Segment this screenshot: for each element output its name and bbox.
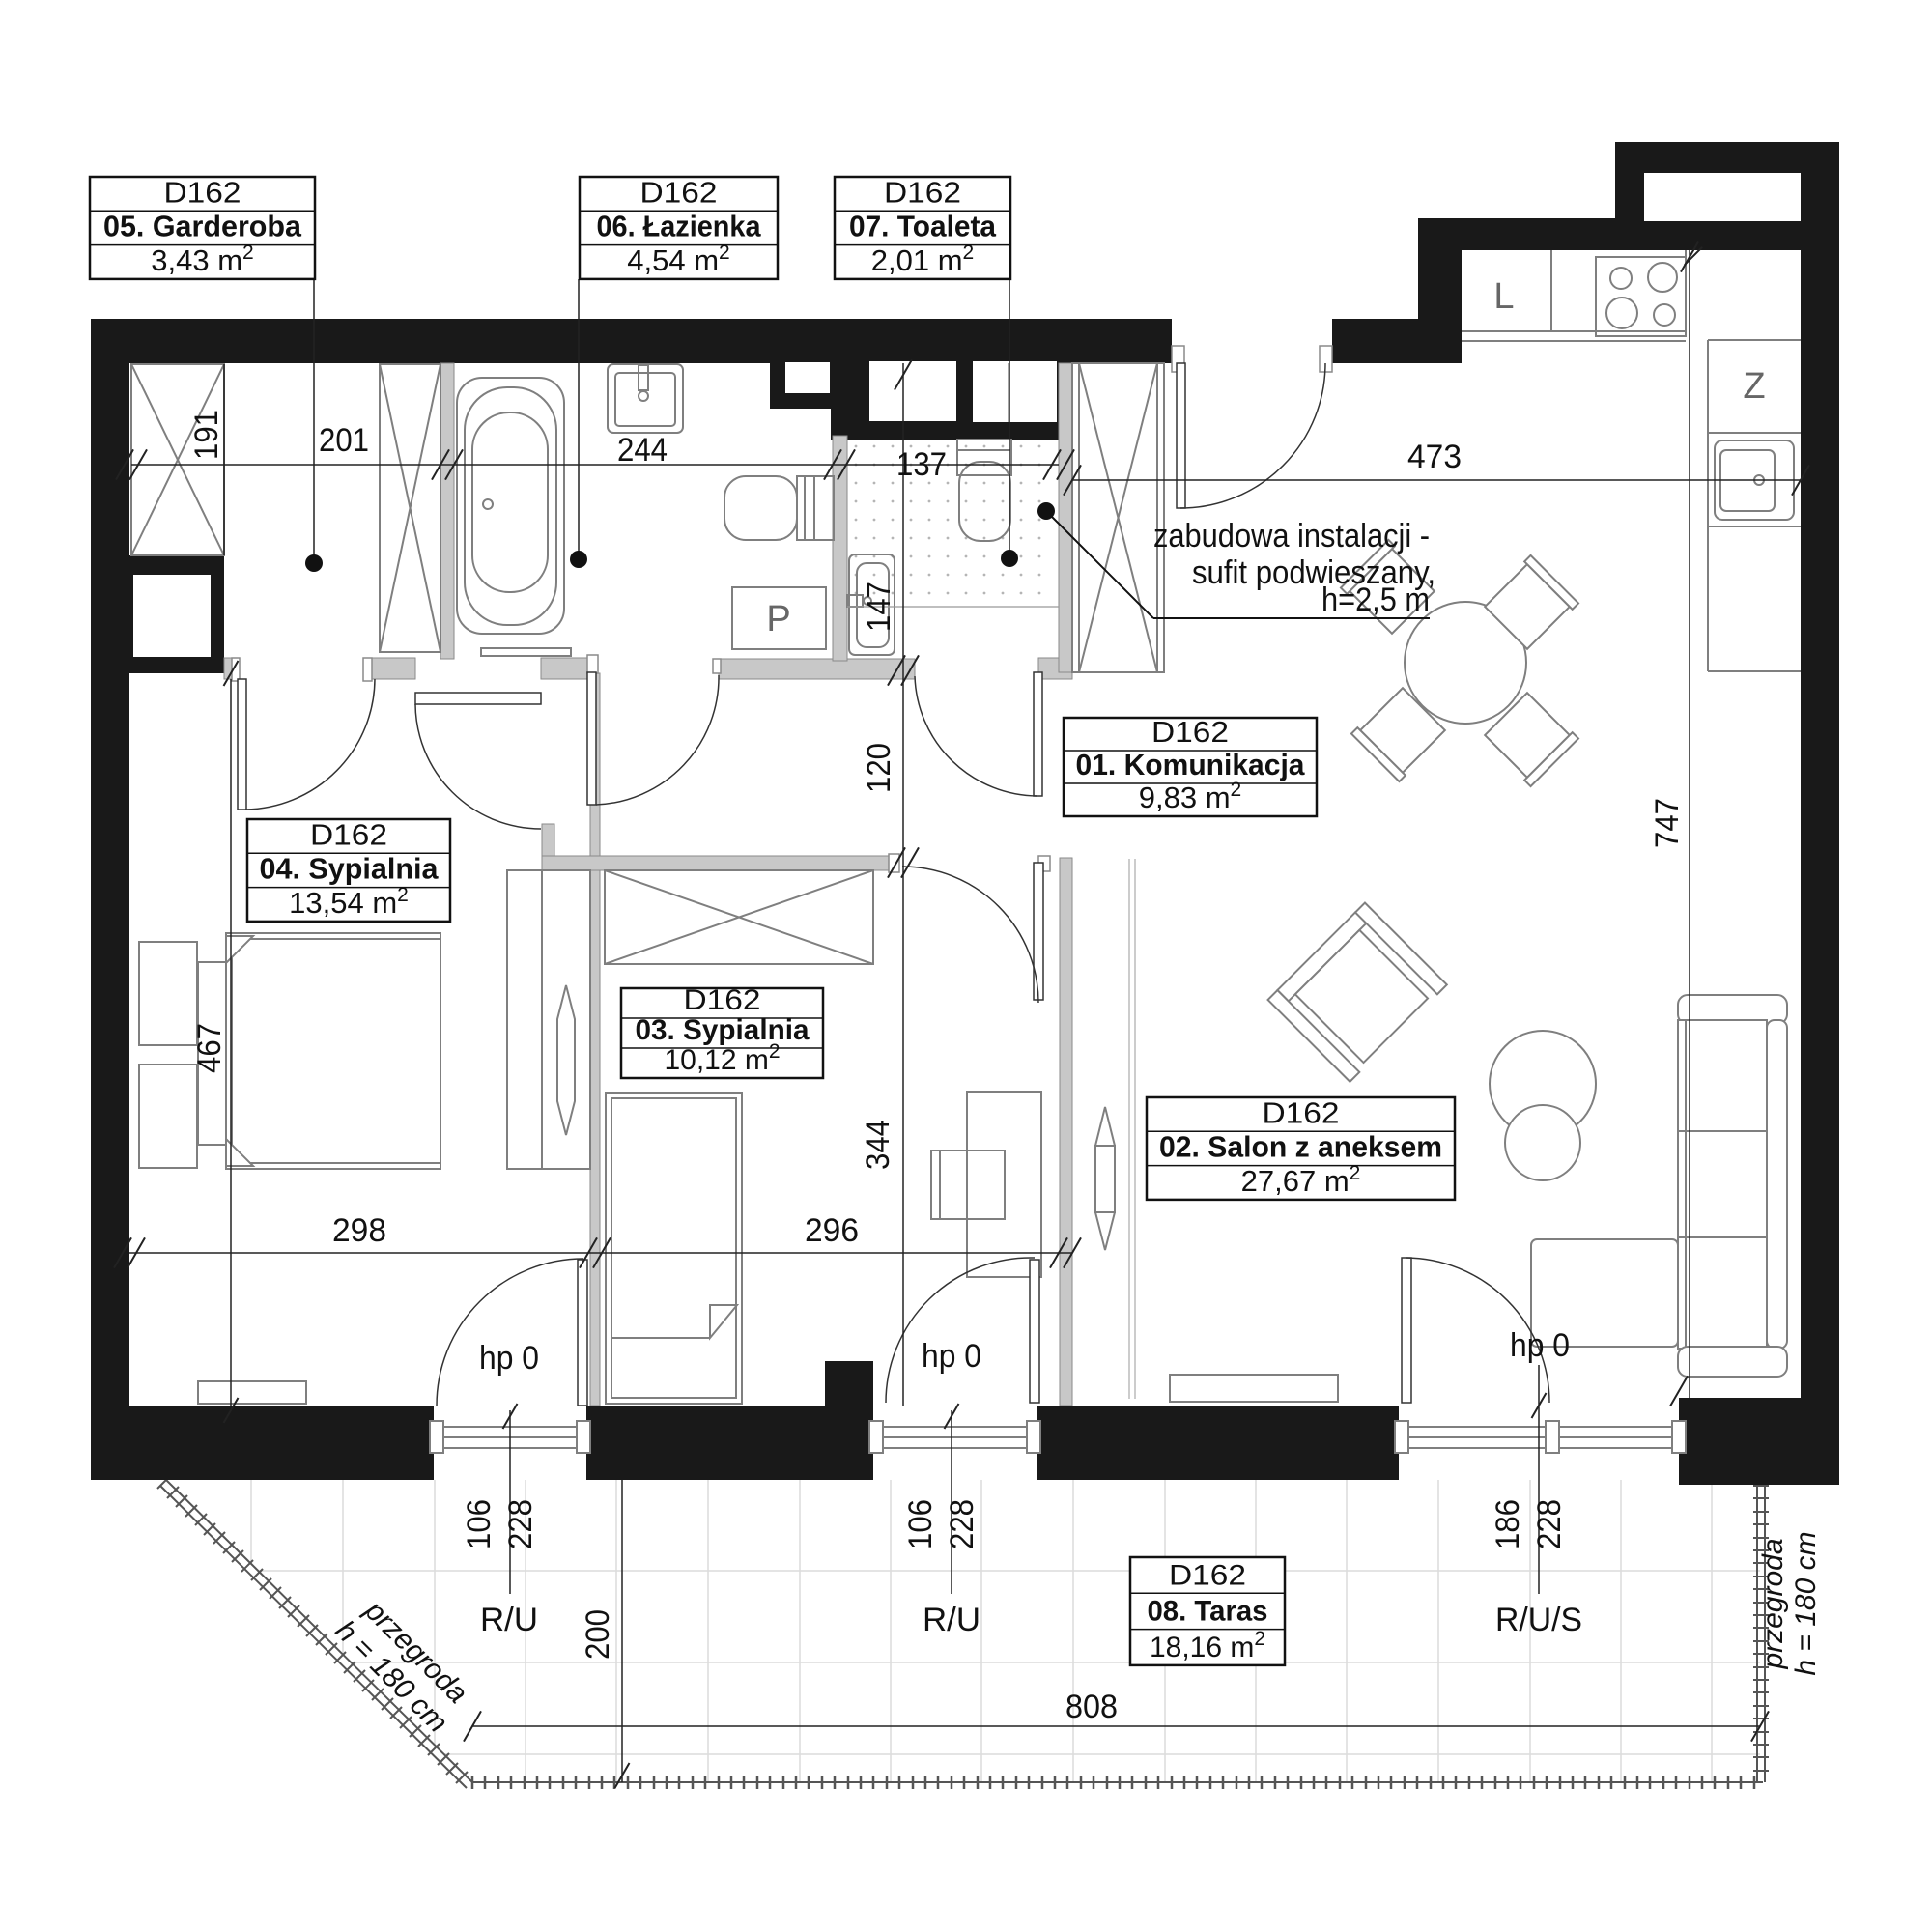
svg-text:D162: D162 [884, 175, 961, 209]
svg-text:296: 296 [805, 1212, 859, 1249]
svg-text:4,54 m2: 4,54 m2 [627, 241, 729, 277]
svg-text:467: 467 [191, 1023, 228, 1073]
svg-text:P: P [766, 599, 790, 639]
svg-text:D162: D162 [640, 175, 718, 209]
svg-text:747: 747 [1649, 798, 1686, 848]
svg-text:244: 244 [617, 432, 668, 469]
svg-text:06. Łazienka: 06. Łazienka [597, 210, 762, 243]
svg-text:13,54 m2: 13,54 m2 [289, 884, 409, 920]
svg-text:106: 106 [902, 1499, 939, 1549]
svg-text:191: 191 [188, 410, 225, 460]
svg-text:10,12 m2: 10,12 m2 [664, 1040, 780, 1076]
svg-text:h=2,5 m: h=2,5 m [1321, 582, 1430, 618]
svg-text:h = 180 cm: h = 180 cm [1790, 1531, 1822, 1675]
svg-text:228: 228 [1531, 1499, 1568, 1549]
svg-text:2,01 m2: 2,01 m2 [871, 241, 974, 277]
svg-text:zabudowa instalacji -: zabudowa instalacji - [1153, 518, 1430, 554]
svg-text:D162: D162 [1169, 1559, 1246, 1591]
svg-text:106: 106 [461, 1499, 497, 1549]
svg-text:200: 200 [580, 1609, 616, 1660]
svg-text:298: 298 [332, 1212, 386, 1249]
svg-text:27,67 m2: 27,67 m2 [1241, 1162, 1361, 1198]
svg-text:137: 137 [896, 446, 947, 483]
svg-text:03. Sypialnia: 03. Sypialnia [636, 1014, 810, 1046]
svg-text:D162: D162 [1263, 1095, 1340, 1129]
svg-text:R/U: R/U [480, 1602, 538, 1638]
svg-text:186: 186 [1490, 1499, 1526, 1549]
svg-text:D162: D162 [1151, 715, 1229, 749]
svg-text:D162: D162 [164, 175, 241, 209]
svg-text:147: 147 [861, 582, 897, 632]
svg-text:Z: Z [1743, 366, 1765, 407]
svg-text:120: 120 [861, 743, 897, 793]
svg-text:D162: D162 [684, 984, 761, 1016]
svg-text:L: L [1493, 276, 1514, 317]
svg-text:przegroda: przegroda [1757, 1538, 1789, 1669]
svg-text:3,43 m2: 3,43 m2 [151, 241, 253, 277]
svg-text:02. Salon z aneksem: 02. Salon z aneksem [1159, 1130, 1442, 1164]
svg-text:hp 0: hp 0 [1510, 1327, 1570, 1364]
svg-text:9,83 m2: 9,83 m2 [1139, 779, 1241, 814]
svg-text:473: 473 [1407, 439, 1462, 475]
svg-text:R/U/S: R/U/S [1495, 1602, 1582, 1638]
svg-text:08. Taras: 08. Taras [1148, 1596, 1268, 1628]
svg-text:18,16 m2: 18,16 m2 [1150, 1628, 1265, 1663]
svg-text:228: 228 [944, 1499, 980, 1549]
svg-text:07. Toaleta: 07. Toaleta [849, 210, 997, 243]
svg-text:04. Sypialnia: 04. Sypialnia [260, 852, 440, 886]
svg-text:808: 808 [1065, 1689, 1118, 1725]
svg-text:344: 344 [860, 1120, 896, 1170]
svg-text:D162: D162 [310, 817, 387, 851]
svg-text:hp 0: hp 0 [922, 1338, 981, 1375]
svg-text:01. Komunikacja: 01. Komunikacja [1076, 748, 1306, 781]
svg-text:228: 228 [502, 1499, 539, 1549]
svg-text:201: 201 [319, 422, 369, 459]
svg-text:05. Garderoba: 05. Garderoba [103, 210, 302, 243]
svg-text:R/U: R/U [923, 1602, 980, 1638]
svg-text:hp 0: hp 0 [479, 1340, 539, 1377]
